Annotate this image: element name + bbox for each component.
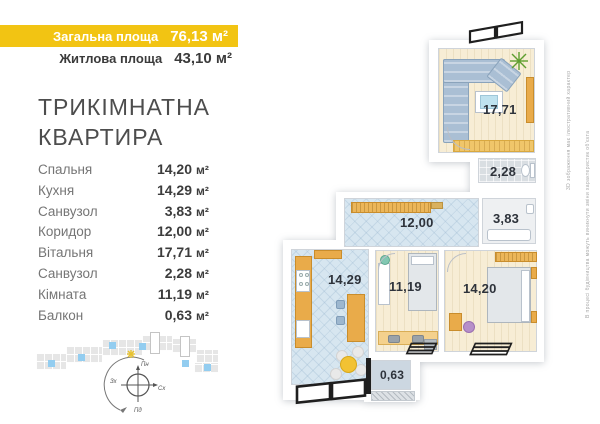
chair	[336, 316, 345, 325]
door-arc	[447, 253, 466, 272]
plant-icon	[509, 51, 529, 71]
site-block-highlight	[204, 364, 211, 371]
room-label-kids: 11,19	[389, 279, 422, 294]
compass-icon: Пн Сх Пд Зх	[98, 350, 176, 416]
balcony-sill	[371, 391, 415, 401]
disclaimer-text: В процесі будівництва можуть виникнути з…	[585, 118, 591, 318]
room-label-bathroom: 3,83	[493, 211, 519, 226]
site-block-highlight	[139, 343, 146, 350]
nightstand	[531, 311, 537, 323]
room-wc-top: 2,28	[478, 158, 536, 183]
wardrobe	[351, 202, 431, 213]
pillow	[411, 256, 434, 265]
window-icon	[466, 20, 528, 48]
room-label-living: 17,71	[483, 102, 517, 117]
room-corridor: 12,00	[344, 198, 479, 247]
stove	[296, 270, 310, 292]
site-block	[196, 350, 218, 363]
window-icon	[468, 342, 514, 357]
bathtub	[487, 229, 531, 241]
room-label-kitchen: 14,29	[328, 272, 362, 287]
compass-west-label: Зх	[110, 379, 118, 385]
dresser	[449, 313, 462, 331]
compass-east-label: Сх	[158, 386, 166, 392]
window-icon	[405, 342, 439, 356]
site-block-highlight	[109, 342, 116, 349]
site-block	[180, 336, 190, 357]
room-label-corridor: 12,00	[400, 215, 434, 230]
kitchen-sink	[296, 320, 310, 338]
site-block-highlight	[182, 360, 189, 367]
toilet-tank	[530, 163, 535, 178]
shelf	[431, 202, 443, 209]
door-arc	[447, 127, 470, 150]
disclaimer-text: 3D зображення має ілюстративний характер	[566, 60, 572, 190]
room-bedroom: 14,20	[444, 250, 537, 352]
room-label-wc-top: 2,28	[490, 164, 516, 179]
chair	[336, 300, 345, 309]
window-icon	[294, 376, 372, 410]
pouf-yellow	[340, 356, 357, 373]
room-bathroom: 3,83	[482, 198, 536, 244]
pouf-purple	[463, 321, 475, 333]
compass-south-label: Пд	[134, 408, 142, 414]
site-plan: Пн Сх Пд Зх	[8, 330, 228, 420]
cabinet	[526, 77, 534, 123]
room-kids: 11,19	[375, 250, 439, 352]
wardrobe	[495, 252, 537, 262]
sink	[526, 204, 534, 214]
nightstand	[531, 267, 537, 279]
toilet	[521, 164, 530, 177]
site-block-highlight	[48, 360, 55, 367]
sun-icon	[127, 350, 135, 358]
compass-north-label: Пн	[141, 362, 149, 368]
room-living: 17,71	[438, 48, 535, 153]
pouf	[352, 346, 364, 358]
room-label-balcony: 0,63	[380, 368, 404, 382]
site-block-highlight	[78, 354, 85, 361]
dining-table	[347, 294, 365, 342]
fridge	[314, 250, 342, 259]
room-balcony: 0,63	[371, 360, 411, 390]
room-kitchen: 14,29	[291, 249, 369, 385]
pillows	[521, 270, 530, 322]
room-label-bedroom: 14,20	[463, 281, 497, 296]
chair	[388, 335, 400, 343]
floorplan-page: Загальна площа 76,13 м² Житлова площа 43…	[0, 0, 600, 424]
